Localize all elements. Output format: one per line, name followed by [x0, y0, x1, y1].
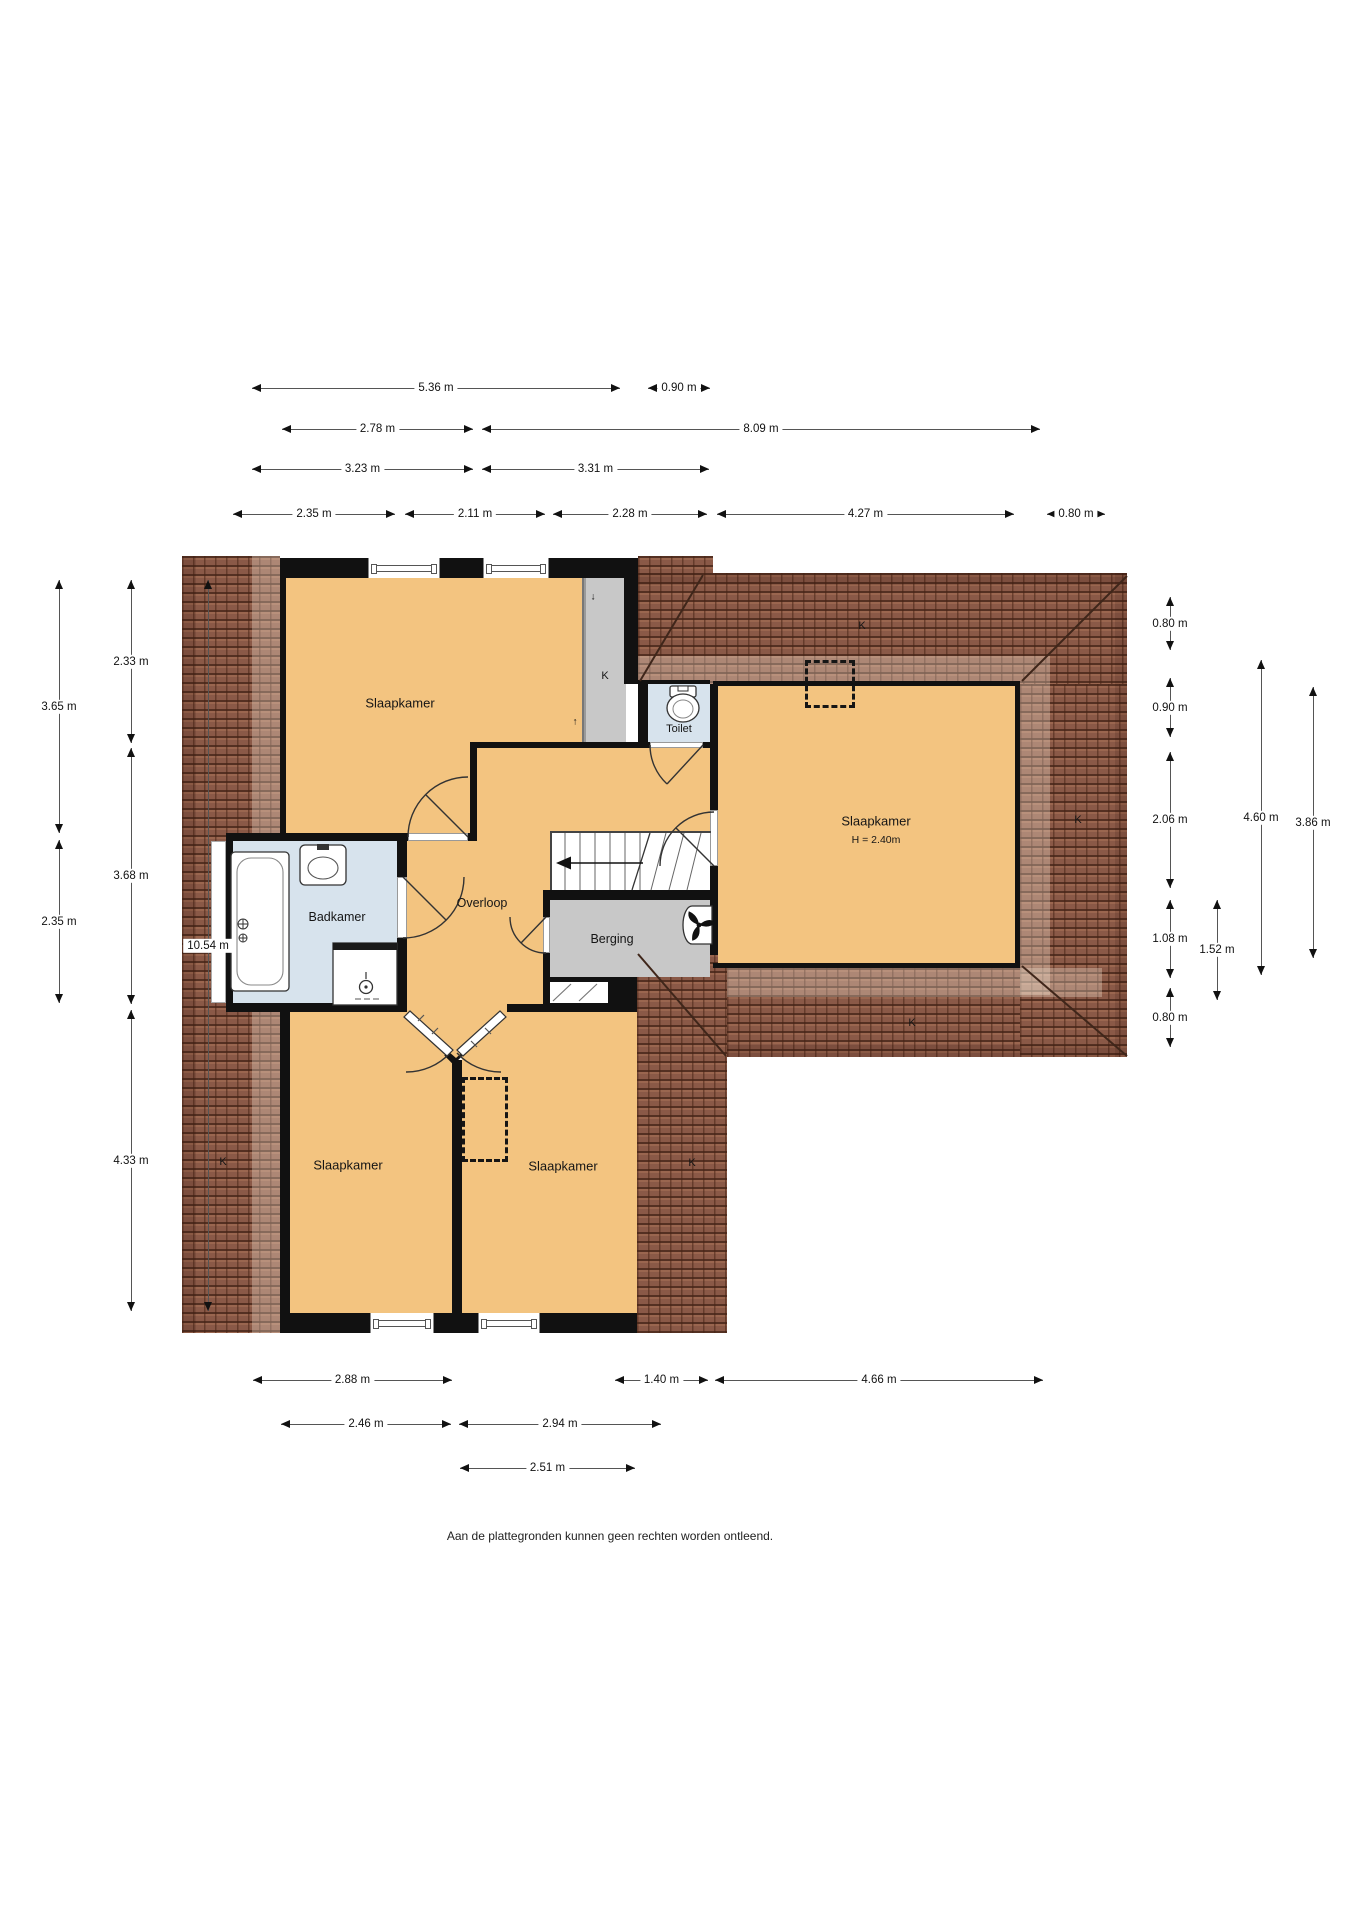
- dim-arrowhead: [127, 995, 135, 1004]
- dim-arrowhead: [701, 384, 710, 392]
- dim-label: 10.54 m: [183, 938, 233, 952]
- label-slaapkamer-sw: Slaapkamer: [313, 1158, 382, 1173]
- dim-label: 2.11 m: [454, 507, 496, 521]
- label-berging: Berging: [590, 932, 633, 946]
- dim-label: 1.52 m: [1195, 943, 1238, 957]
- dim-label: 2.06 m: [1148, 813, 1191, 827]
- label-overloop: Overloop: [457, 896, 508, 910]
- dim-label: 2.35 m: [292, 507, 335, 521]
- linework-svg: [0, 0, 1358, 1920]
- dim-arrowhead: [1166, 678, 1174, 687]
- dim-arrowhead: [553, 510, 562, 518]
- dim-arrowhead: [1166, 1038, 1174, 1047]
- label-toilet: Toilet: [666, 723, 692, 735]
- dim-arrowhead: [252, 384, 261, 392]
- dim-arrowhead: [482, 465, 491, 473]
- dim-arrowhead: [615, 1376, 624, 1384]
- k-mark-k-wing-bottom: K: [908, 1017, 915, 1029]
- dim-arrowhead: [1309, 949, 1317, 958]
- dim-arrowhead: [648, 384, 657, 392]
- dim-arrowhead: [1213, 991, 1221, 1000]
- dim-arrowhead: [611, 384, 620, 392]
- dim-arrowhead: [1309, 687, 1317, 696]
- dim-arrowhead: [482, 425, 491, 433]
- dim-label: 4.27 m: [844, 507, 887, 521]
- dim-arrowhead: [127, 748, 135, 757]
- dim-arrowhead: [55, 824, 63, 833]
- dim-arrowhead: [233, 510, 242, 518]
- dim-arrowhead: [253, 1376, 262, 1384]
- floorplan-canvas: SlaapkamerSlaapkamerH = 2.40mSlaapkamerS…: [0, 0, 1358, 1920]
- label-slaapkamer-e-height: H = 2.40m: [852, 834, 901, 846]
- dim-arrowhead: [282, 425, 291, 433]
- dim-label: 2.51 m: [526, 1461, 569, 1475]
- dim-arrowhead: [127, 734, 135, 743]
- dim-arrowhead: [204, 1302, 212, 1311]
- label-slaapkamer-e: Slaapkamer: [841, 814, 910, 829]
- dim-arrowhead: [1166, 900, 1174, 909]
- toilet-fixture: [667, 686, 699, 722]
- k-mark-k-closet: K: [601, 670, 608, 682]
- dim-label: 2.35 m: [37, 914, 80, 928]
- dim-label: 2.46 m: [344, 1417, 387, 1431]
- dim-arrowhead: [281, 1420, 290, 1428]
- dim-label: 3.68 m: [109, 869, 152, 883]
- dim-label: 2.88 m: [331, 1373, 374, 1387]
- dim-arrowhead: [443, 1376, 452, 1384]
- dim-arrowhead: [127, 580, 135, 589]
- storage-hatch-lines: [553, 984, 597, 1001]
- dim-arrowhead: [1213, 900, 1221, 909]
- dim-arrowhead: [1257, 660, 1265, 669]
- dim-arrowhead: [464, 425, 473, 433]
- stairs-direction-arrow: [556, 857, 643, 870]
- dim-label: 3.65 m: [37, 699, 80, 713]
- label-slaapkamer-nw: Slaapkamer: [365, 696, 434, 711]
- dim-arrowhead: [1034, 1376, 1043, 1384]
- dim-label: 3.31 m: [574, 462, 617, 476]
- stairs: [565, 833, 701, 890]
- arrow-closet-arrow-up: ↑: [573, 717, 578, 728]
- dim-arrowhead: [55, 840, 63, 849]
- dim-label: 2.94 m: [538, 1417, 581, 1431]
- dim-label: 0.80 m: [1148, 1010, 1191, 1024]
- k-mark-k-left-strip: K: [219, 1156, 226, 1168]
- dim-label: 0.80 m: [1148, 616, 1191, 630]
- dim-arrowhead: [55, 580, 63, 589]
- dim-arrowhead: [699, 1376, 708, 1384]
- dim-arrowhead: [536, 510, 545, 518]
- dim-label: 2.78 m: [356, 422, 399, 436]
- dim-arrowhead: [1166, 752, 1174, 761]
- dim-arrowhead: [252, 465, 261, 473]
- dim-arrowhead: [1166, 969, 1174, 978]
- dim-label: 4.33 m: [109, 1153, 152, 1167]
- dim-label: 2.33 m: [109, 654, 152, 668]
- dim-label: 4.60 m: [1239, 810, 1282, 824]
- dim-arrowhead: [386, 510, 395, 518]
- dim-arrowhead: [204, 580, 212, 589]
- dim-arrowhead: [1166, 879, 1174, 888]
- bathtub: [231, 852, 289, 991]
- dim-arrowhead: [698, 510, 707, 518]
- dim-label: 1.40 m: [640, 1373, 683, 1387]
- dim-label: 1.08 m: [1148, 932, 1191, 946]
- dim-arrowhead: [715, 1376, 724, 1384]
- dim-label: 2.28 m: [608, 507, 651, 521]
- disclaimer-text: Aan de plattegronden kunnen geen rechten…: [447, 1529, 773, 1543]
- dim-arrowhead: [460, 1464, 469, 1472]
- dim-arrowhead: [55, 994, 63, 1003]
- shower: [333, 943, 397, 1005]
- dim-label: 5.36 m: [414, 381, 457, 395]
- dim-arrowhead: [652, 1420, 661, 1428]
- dim-arrowhead: [464, 465, 473, 473]
- dim-arrowhead: [700, 465, 709, 473]
- dim-arrowhead: [1031, 425, 1040, 433]
- dim-label: 0.90 m: [657, 381, 700, 395]
- k-mark-k-wing-right: K: [1074, 814, 1081, 826]
- dim-arrowhead: [1166, 728, 1174, 737]
- dim-label: 3.86 m: [1291, 815, 1334, 829]
- ventilation-unit: [683, 906, 716, 944]
- dim-arrowhead: [442, 1420, 451, 1428]
- dim-label: 8.09 m: [739, 422, 782, 436]
- dim-label: 4.66 m: [857, 1373, 900, 1387]
- dim-arrowhead: [127, 1010, 135, 1019]
- dim-arrowhead: [626, 1464, 635, 1472]
- dim-arrowhead: [459, 1420, 468, 1428]
- washbasin: [300, 844, 346, 885]
- dim-label: 0.90 m: [1148, 700, 1191, 714]
- dim-label: 0.80 m: [1054, 507, 1097, 521]
- arrow-closet-arrow-down: ↓: [591, 592, 596, 603]
- k-mark-k-wing-top: K: [858, 620, 865, 632]
- label-slaapkamer-se: Slaapkamer: [528, 1159, 597, 1174]
- dim-arrowhead: [1166, 597, 1174, 606]
- k-mark-k-bottom-center: K: [688, 1157, 695, 1169]
- dim-arrowhead: [127, 1302, 135, 1311]
- dim-arrowhead: [717, 510, 726, 518]
- label-badkamer: Badkamer: [309, 910, 366, 924]
- dim-arrowhead: [1005, 510, 1014, 518]
- dim-arrowhead: [405, 510, 414, 518]
- dim-arrowhead: [1166, 641, 1174, 650]
- dim-label: 3.23 m: [341, 462, 384, 476]
- dim-arrowhead: [1257, 966, 1265, 975]
- dim-arrowhead: [1166, 988, 1174, 997]
